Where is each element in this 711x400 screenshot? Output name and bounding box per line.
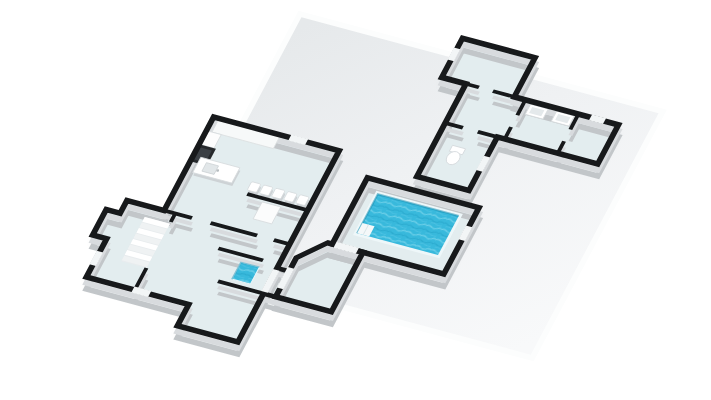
floorplan-canvas bbox=[0, 0, 711, 400]
floorplan-render bbox=[0, 0, 711, 400]
